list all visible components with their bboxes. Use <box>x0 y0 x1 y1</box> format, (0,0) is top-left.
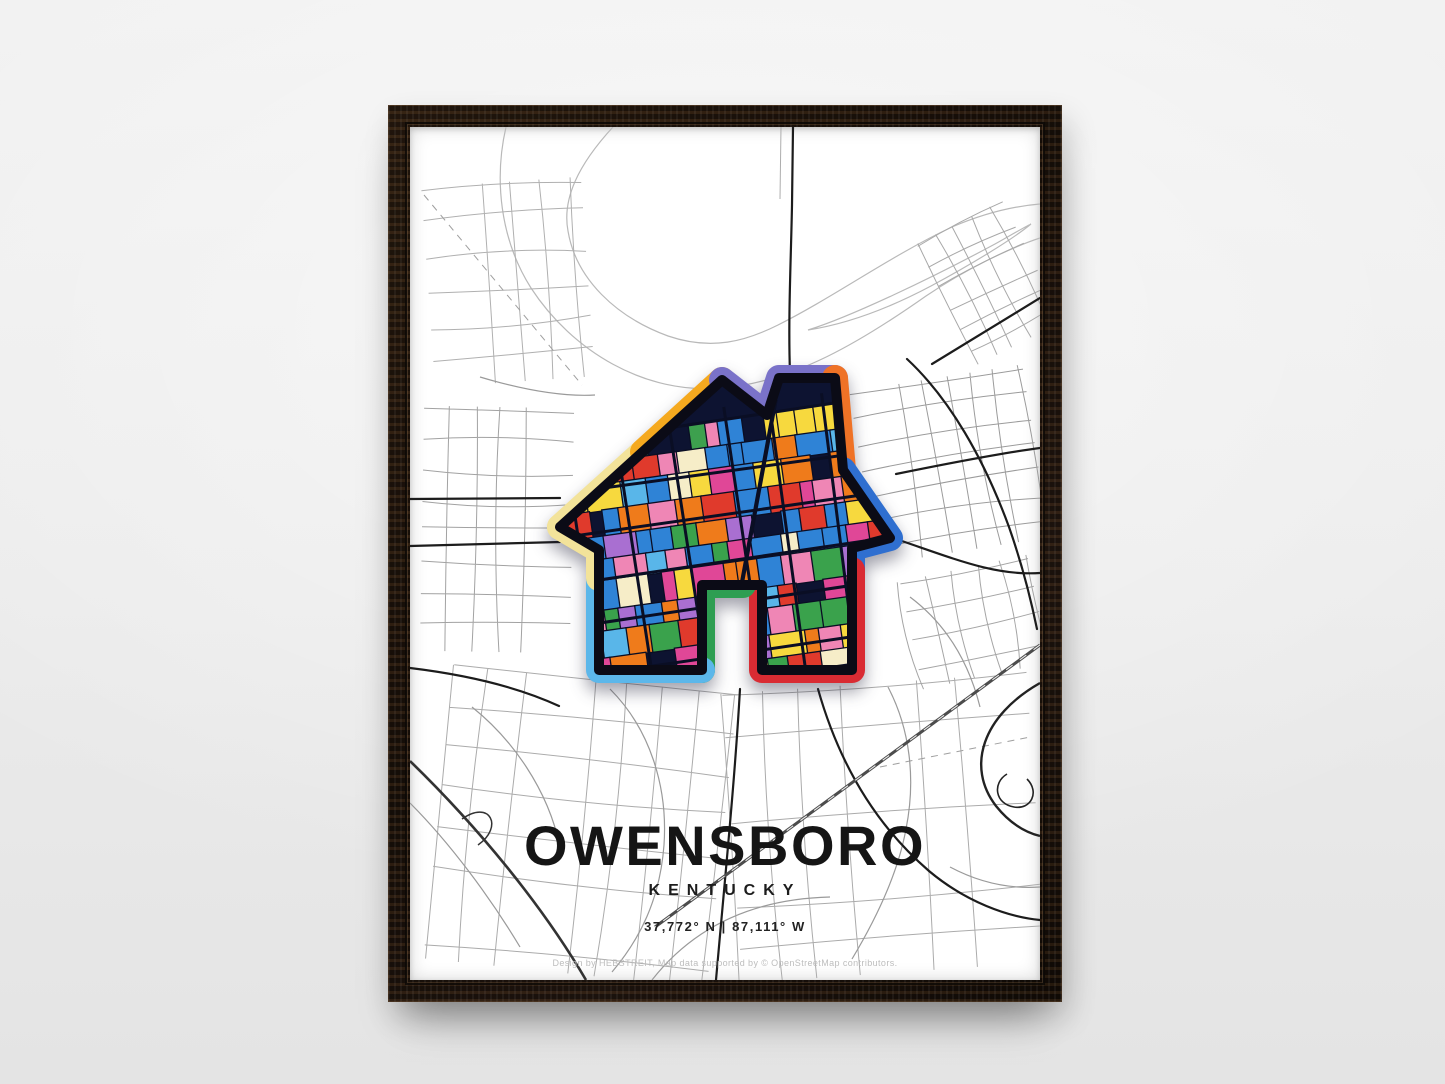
poster-frame: OWENSBORO KENTUCKY 37,772° N | 87,111° W… <box>388 105 1062 1002</box>
wall-background: OWENSBORO KENTUCKY 37,772° N | 87,111° W… <box>0 0 1445 1084</box>
poster-title: OWENSBORO <box>410 813 1040 878</box>
map-poster: OWENSBORO KENTUCKY 37,772° N | 87,111° W… <box>410 127 1040 980</box>
poster-coordinates: 37,772° N | 87,111° W <box>410 919 1040 934</box>
poster-subtitle: KENTUCKY <box>410 882 1040 900</box>
poster-attribution: Design by HEBSTREIT, Map data supported … <box>410 958 1040 968</box>
home-shape-graphic <box>543 356 907 701</box>
